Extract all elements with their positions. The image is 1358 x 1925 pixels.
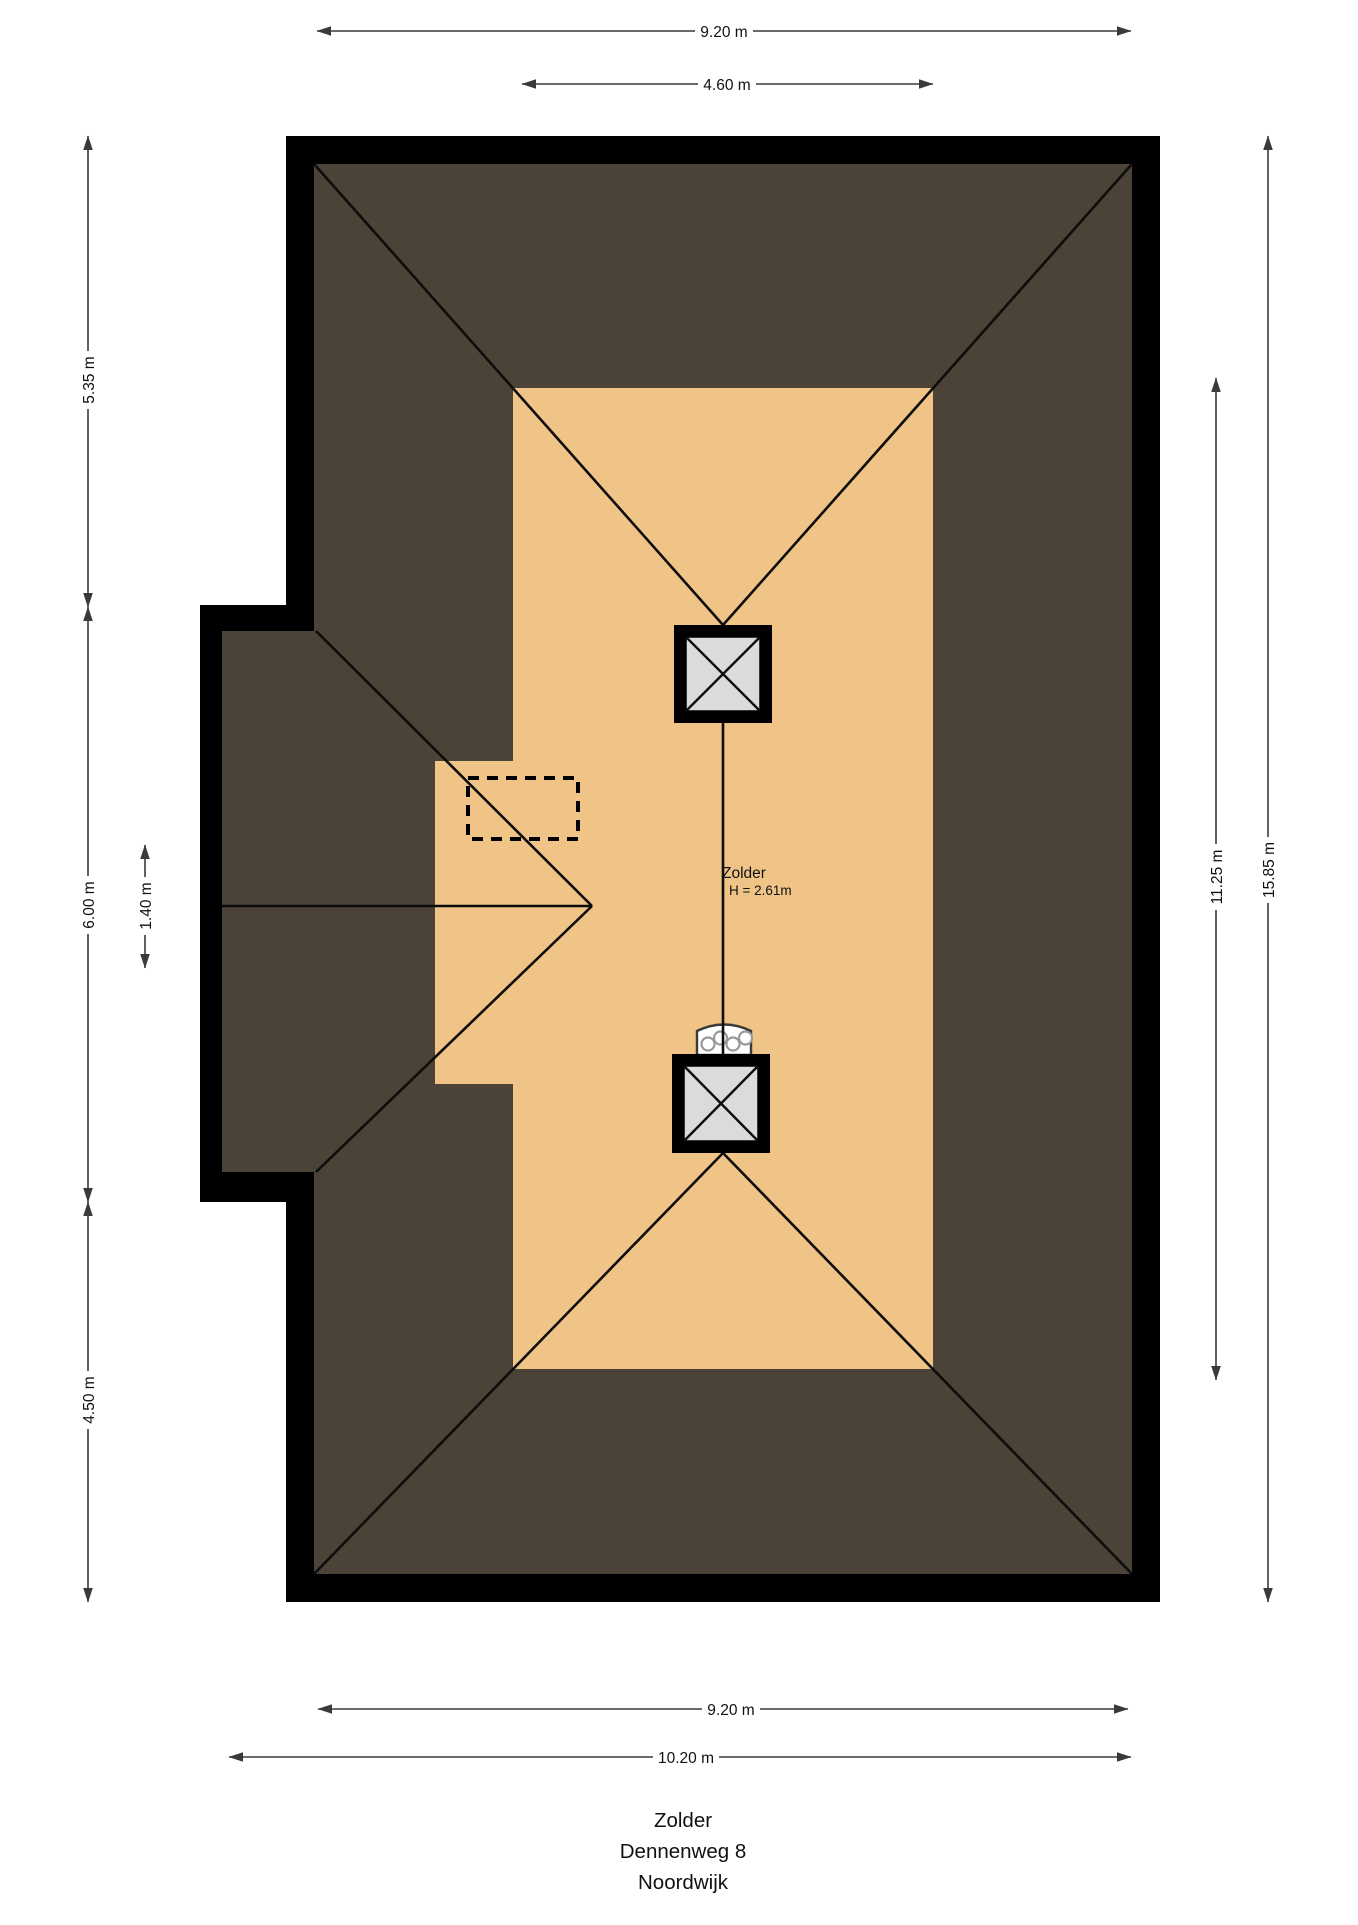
dim-bottom-inner: 9.20 m — [318, 1699, 1128, 1719]
chimney-flue-icon — [702, 1038, 715, 1051]
dim-left-middle: 6.00 m — [78, 607, 98, 1202]
dimension-label: 10.20 m — [658, 1750, 714, 1767]
dim-left-inner: 1.40 m — [135, 845, 155, 968]
dim-right-outer: 15.85 m — [1258, 136, 1278, 1602]
title-block: Zolder Dennenweg 8 Noordwijk — [620, 1809, 747, 1894]
dimension-label: 11.25 m — [1209, 850, 1226, 905]
dimension-label: 5.35 m — [81, 356, 98, 403]
chimney-flue-icon — [739, 1032, 752, 1045]
dim-bottom-outer: 10.20 m — [229, 1747, 1131, 1767]
dimension-label: 4.60 m — [703, 77, 750, 94]
skylight-bottom — [672, 1054, 770, 1153]
dimension-label: 6.00 m — [81, 881, 98, 928]
dim-right-inner: 11.25 m — [1206, 378, 1226, 1380]
title-city: Noordwijk — [638, 1871, 729, 1894]
room-height: H = 2.61m — [729, 883, 792, 898]
dimension-label: 15.85 m — [1261, 842, 1278, 898]
chimney-flue-icon — [727, 1038, 740, 1051]
title-floor: Zolder — [654, 1809, 712, 1832]
dim-top-outer: 9.20 m — [317, 21, 1131, 41]
dimension-label: 9.20 m — [700, 24, 747, 41]
dim-left-top: 5.35 m — [78, 136, 98, 607]
skylight-top — [674, 625, 772, 723]
room-name: Zolder — [722, 865, 766, 882]
dimension-label: 9.20 m — [707, 1702, 754, 1719]
dimension-label: 4.50 m — [81, 1376, 98, 1423]
chimney-flue-icon — [714, 1032, 727, 1045]
title-street: Dennenweg 8 — [620, 1840, 747, 1863]
floorplan-canvas: Zolder H = 2.61m 9.20 m 4.60 m 9.20 m 10… — [0, 0, 1358, 1920]
chimney — [697, 1025, 752, 1056]
dim-left-bottom: 4.50 m — [78, 1202, 98, 1602]
dim-top-inner: 4.60 m — [522, 74, 933, 94]
dimension-label: 1.40 m — [138, 882, 155, 929]
